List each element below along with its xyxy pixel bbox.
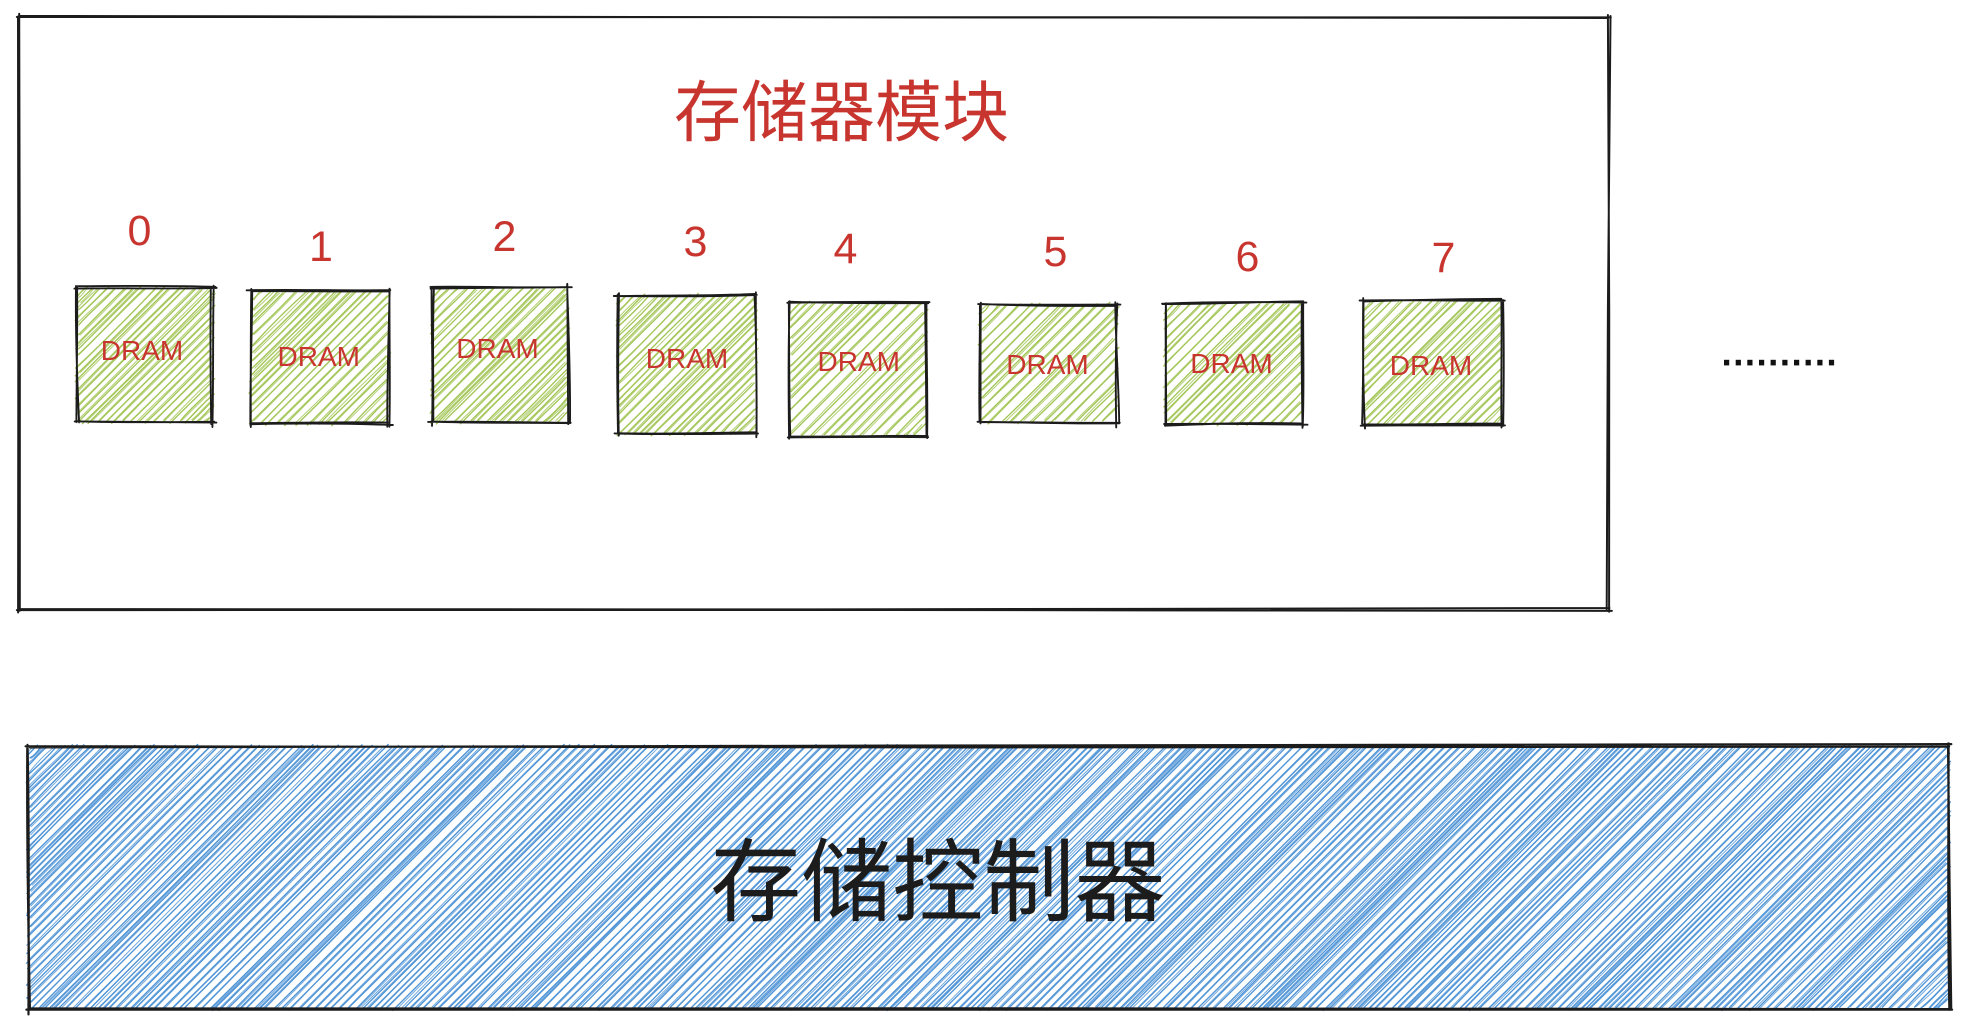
svg-text:1: 1 <box>309 223 333 271</box>
svg-text:5: 5 <box>1044 228 1068 276</box>
svg-text:DRAM: DRAM <box>1006 349 1088 380</box>
svg-text:4: 4 <box>834 225 858 273</box>
svg-text:DRAM: DRAM <box>817 346 899 377</box>
svg-text:7: 7 <box>1432 234 1456 282</box>
svg-text:2: 2 <box>493 213 517 261</box>
svg-text:0: 0 <box>128 207 152 255</box>
svg-text:3: 3 <box>684 218 708 266</box>
svg-text:DRAM: DRAM <box>1190 348 1272 379</box>
svg-text:DRAM: DRAM <box>277 341 359 372</box>
svg-text:DRAM: DRAM <box>1390 350 1472 381</box>
svg-text:6: 6 <box>1236 233 1260 281</box>
svg-text:DRAM: DRAM <box>101 335 183 366</box>
svg-text:DRAM: DRAM <box>456 333 538 364</box>
svg-text:DRAM: DRAM <box>646 343 728 374</box>
